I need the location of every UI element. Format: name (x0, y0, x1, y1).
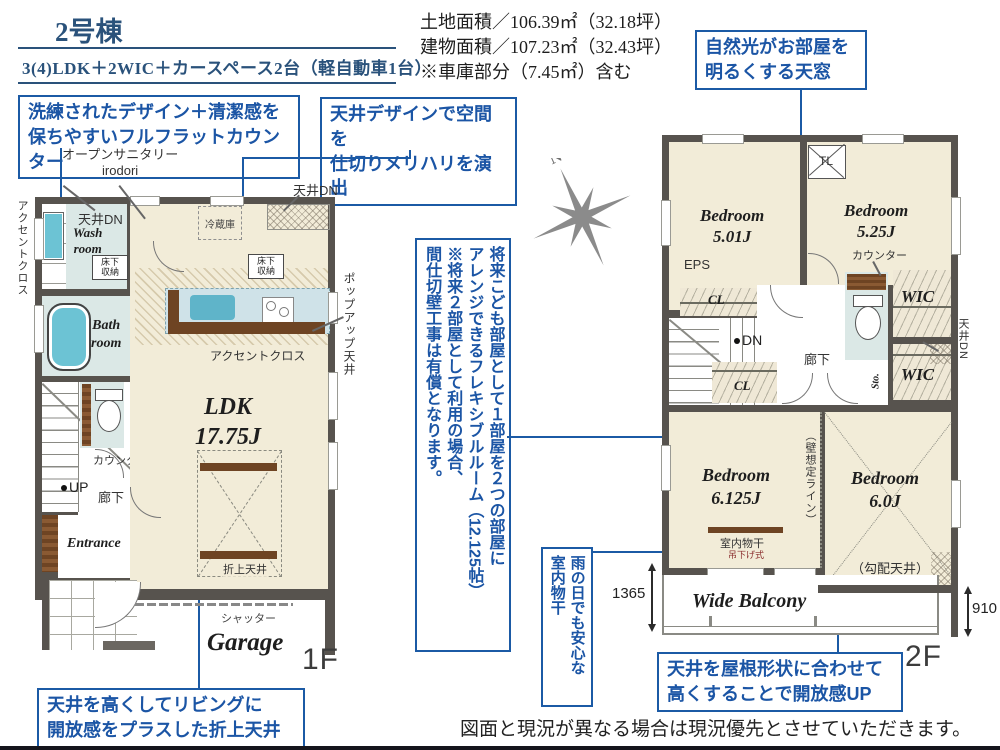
balcony-post (709, 616, 712, 626)
bedroom-6-0: Bedroom 6.0J （勾配天井） (825, 412, 951, 585)
balcony-name: Wide Balcony (692, 589, 806, 614)
window (702, 134, 744, 144)
callout-skylight: 自然光がお部屋を 明るくする天窓 (695, 30, 867, 90)
dn-label: DN (742, 332, 762, 348)
counter-wood-front (168, 322, 325, 334)
toilet-bowl-2f (855, 306, 881, 340)
stove-burner (266, 301, 276, 311)
skylight-tl: TL (808, 145, 846, 179)
bathroom-name: Bath room (91, 317, 121, 352)
up-label: UP (69, 479, 88, 495)
bedroom-5-01-name: Bedroom 5.01J (700, 205, 764, 248)
window (210, 196, 244, 206)
window (862, 134, 904, 144)
window (34, 218, 44, 260)
garage-area-note: ※車庫部分（7.45㎡）含む (420, 58, 632, 84)
disclaimer: 図面と現況が異なる場合は現況優先とさせていただきます。 (460, 714, 971, 741)
window (661, 200, 671, 246)
plan-2f-walls: Bedroom 5.01J Bedroom 5.25J TL EPS CL DN (662, 135, 958, 575)
open-sanitary-label: オープンサニタリー irodori (62, 147, 178, 180)
sanitary-sink (44, 213, 63, 259)
window (328, 372, 338, 420)
plan-1f: 天井DN Wash room 床下 収納 洗濯機 Bath room 可動棚4段… (35, 197, 335, 660)
stove-burner (279, 307, 289, 317)
dimension-arrow-1365 (651, 565, 653, 630)
refrigerator-space: 冷蔵庫 (198, 206, 242, 240)
dn-dot (734, 338, 740, 344)
folded-ceiling-label: 折上天井 (223, 561, 267, 577)
garage-name: Garage (207, 627, 283, 658)
popup-ceiling-label: ポップアップ天井 (341, 272, 358, 402)
entrance-name: Entrance (67, 535, 121, 553)
right-lower-wall (951, 575, 958, 637)
plan-type: 3(4)LDK＋2WIC＋カースペース2台（軽自動車1台） (22, 54, 432, 79)
bathtub (47, 303, 91, 371)
callout-ceiling-design: 天井デザインで空間を 仕切りメリハリを演出 (320, 97, 517, 206)
closet-cl2-label: CL (734, 378, 751, 394)
skylight-tl-label: TL (819, 154, 833, 168)
ldk-name: LDK 17.75J (195, 392, 261, 452)
underfloor-storage-label-kitchen: 床下 収納 (248, 254, 284, 279)
compass-rose: N (523, 158, 641, 276)
plan-2f: Bedroom 5.01J Bedroom 5.25J TL EPS CL DN (662, 135, 958, 645)
counter-label-2f: カウンター (852, 247, 907, 263)
garage-shutter-line (135, 603, 293, 606)
bedroom-6-125-name: Bedroom 6.125J (702, 464, 770, 509)
compass-north-label: N (546, 158, 565, 168)
drying-pole (708, 527, 783, 533)
window (951, 480, 961, 528)
building-number: 2号棟 (55, 10, 123, 49)
shutter-label: シャッター (221, 610, 276, 626)
header-rule-bottom (18, 82, 396, 84)
callout-sloped-ceiling: 天井を屋根形状に合わせて 高くすることで開放感UP (657, 652, 903, 712)
ceiling-down-zone-kitchen (267, 204, 330, 230)
shoe-cabinet (42, 515, 58, 572)
plan-1f-walls: 天井DN Wash room 床下 収納 洗濯機 Bath room 可動棚4段… (35, 197, 335, 600)
washroom-name: Wash room (73, 225, 102, 258)
closet-cl1-label: CL (708, 292, 725, 308)
hallway-label-2f: 廊下 (804, 349, 830, 368)
header-rule-top (18, 47, 396, 49)
folded-ceiling-beam (200, 551, 277, 559)
dimension-arrow-910 (967, 588, 969, 635)
window (328, 442, 338, 490)
note-flexible-room: 将来こども部屋として１部屋を２つの部屋に アレンジできるフレキシブルルーム（12… (415, 238, 511, 652)
toilet-counter-2f (847, 274, 886, 290)
wic-2-label: WIC (901, 364, 934, 385)
bottom-rule (0, 746, 1000, 750)
storage-sto-2f-label: Sto. (871, 373, 884, 389)
floor-1f-label: 1F (302, 643, 339, 677)
floorplan-flyer: 2号棟 3(4)LDK＋2WIC＋カースペース2台（軽自動車1台） 土地面積／1… (0, 0, 1000, 750)
wall-assumed-line (820, 412, 822, 568)
eps-label: EPS (684, 257, 710, 272)
bedroom-5-25-name: Bedroom 5.25J (844, 200, 908, 243)
land-area: 土地面積／106.39㎡（32.18坪） (420, 8, 672, 34)
accent-cross-side-label: アクセントクロス (14, 200, 30, 350)
hanging-type-label: 吊下げ式 (728, 548, 764, 561)
connector-line (242, 157, 411, 159)
underfloor-storage-label-wash: 床下 収納 (92, 255, 128, 280)
up-dot (61, 485, 67, 491)
balcony-railing (664, 626, 937, 628)
toilet-shelf (82, 384, 91, 446)
toilet-bowl-1f (97, 400, 121, 432)
floor-2f-label: 2F (905, 640, 942, 674)
dimension-910: 910 (972, 600, 997, 617)
folded-ceiling-zone (197, 450, 282, 577)
closet-cl1: CL (680, 288, 757, 316)
wic-1-label: WIC (901, 286, 934, 307)
callout-folded-ceiling: 天井を高くしてリビングに 開放感をプラスした折上天井 (37, 688, 305, 748)
folded-ceiling-beam (200, 463, 277, 471)
window (661, 445, 671, 491)
building-area: 建物面積／107.23㎡（32.43坪） (420, 33, 672, 59)
note-indoor-drying: 雨の日でも安心な 室内物干 (541, 547, 593, 707)
stove (262, 297, 294, 323)
closet-cl2: CL (712, 362, 777, 403)
dimension-1365: 1365 (612, 585, 645, 602)
window (34, 305, 44, 353)
balcony-post (814, 616, 817, 626)
wall-assumed-label: （壁想定ライン） (802, 430, 818, 555)
ceiling-dn-2f-label: 天井DN (955, 318, 971, 382)
accent-cross-label-kitchen: アクセントクロス (210, 347, 305, 364)
bedroom-6-0-name: Bedroom 6.0J (851, 467, 919, 512)
kitchen-sink-island (190, 295, 235, 320)
bedroom-6-0-bottom-wall (818, 585, 958, 593)
wic-1: WIC (893, 270, 951, 337)
window (951, 197, 961, 255)
porch-step (103, 641, 155, 650)
balcony: Wide Balcony (662, 575, 939, 635)
hallway-label-1f: 廊下 (98, 487, 124, 506)
